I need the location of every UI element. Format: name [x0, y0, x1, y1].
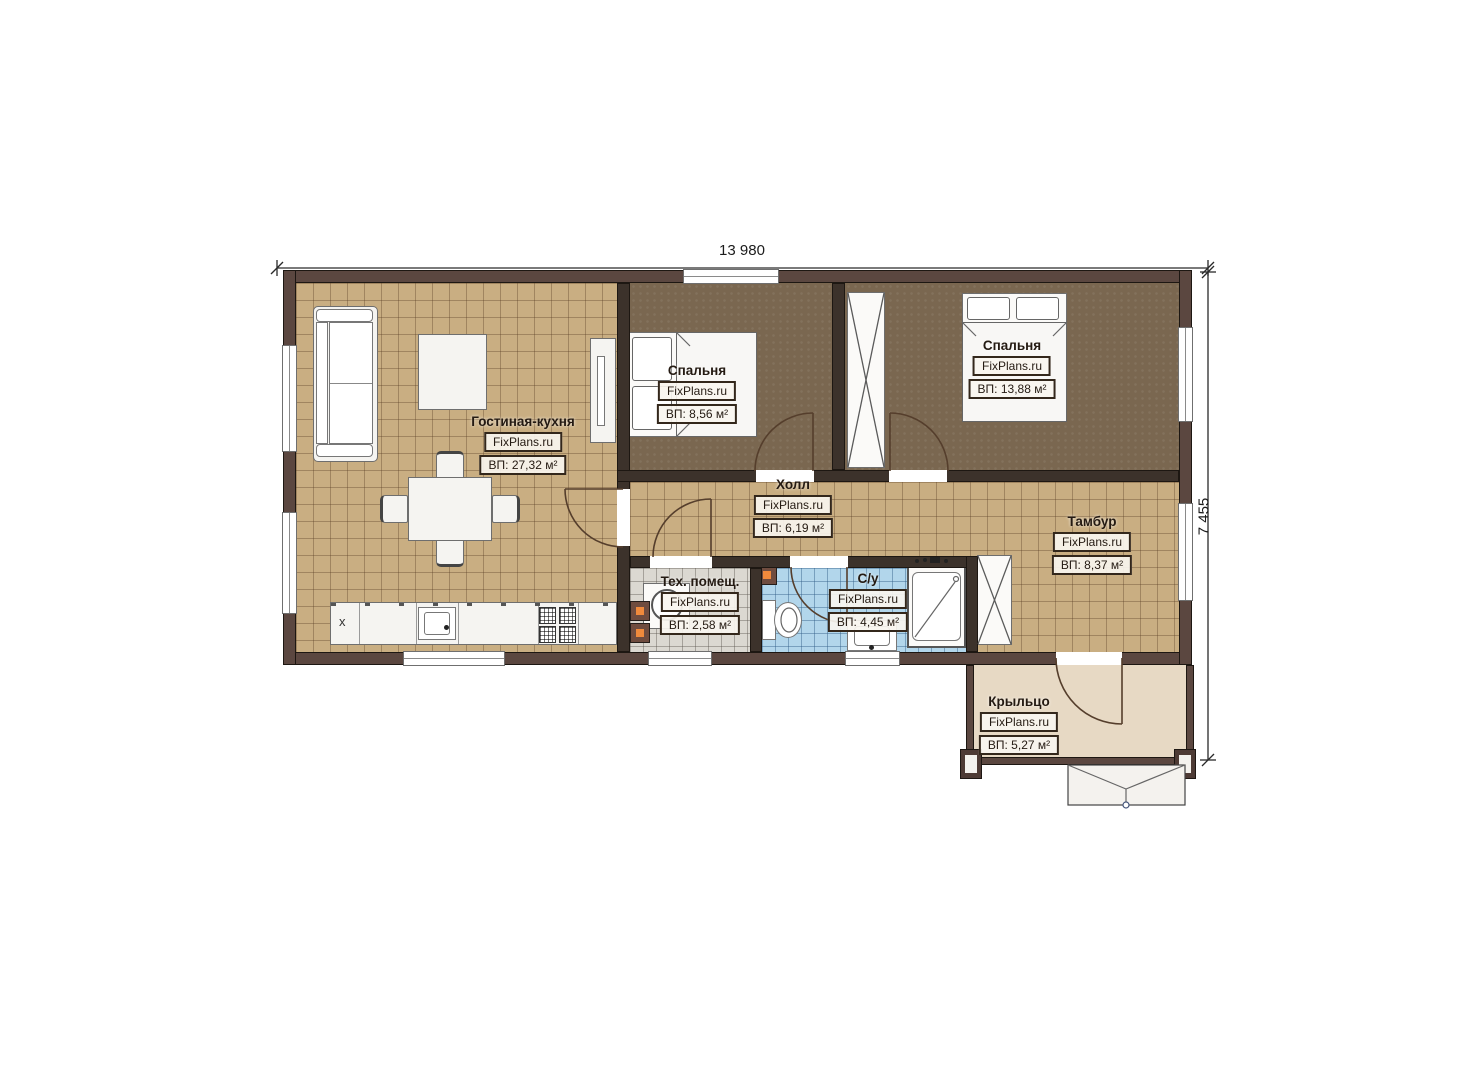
wardrobe-cross-bedroom2 [848, 293, 884, 467]
door-arc-bedroom2 [890, 413, 948, 471]
room-area: ВП: 6,19 м² [753, 518, 833, 538]
wardrobe-cross-vestibule [978, 556, 1011, 644]
room-area: ВП: 13,88 м² [969, 379, 1056, 399]
room-name: Тамбур [1052, 514, 1132, 529]
plan-linework [0, 0, 1473, 1080]
shower-drain-line [915, 557, 959, 637]
room-site: FixPlans.ru [661, 592, 739, 612]
room-area: ВП: 2,58 м² [660, 615, 740, 635]
floor-plan-canvas: x [0, 0, 1473, 1080]
room-area: ВП: 8,37 м² [1052, 555, 1132, 575]
door-arc-tech [653, 499, 711, 557]
room-name: Спальня [657, 363, 737, 378]
room-name: Спальня [969, 338, 1056, 353]
room-label-tech: Тех. помещ. FixPlans.ru ВП: 2,58 м² [660, 574, 740, 635]
room-name: С/у [828, 571, 908, 586]
room-label-bedroom2: Спальня FixPlans.ru ВП: 13,88 м² [969, 338, 1056, 399]
room-label-living: Гостиная-кухня FixPlans.ru ВП: 27,32 м² [471, 414, 574, 475]
toilet-bowl-line [781, 608, 797, 632]
dimension-line-top [271, 260, 1214, 276]
room-label-bedroom1: Спальня FixPlans.ru ВП: 8,56 м² [657, 363, 737, 424]
room-area: ВП: 8,56 м² [657, 404, 737, 424]
room-site: FixPlans.ru [754, 495, 832, 515]
room-site: FixPlans.ru [1053, 532, 1131, 552]
room-name: Холл [753, 477, 833, 492]
room-site: FixPlans.ru [829, 589, 907, 609]
room-area: ВП: 5,27 м² [979, 735, 1059, 755]
room-label-bathroom: С/у FixPlans.ru ВП: 4,45 м² [828, 571, 908, 632]
room-name: Гостиная-кухня [471, 414, 574, 429]
room-site: FixPlans.ru [973, 356, 1051, 376]
door-arc-entrance [1056, 658, 1122, 724]
room-label-hall: Холл FixPlans.ru ВП: 6,19 м² [753, 477, 833, 538]
dimension-width-label: 13 980 [692, 242, 792, 259]
room-site: FixPlans.ru [658, 381, 736, 401]
room-area: ВП: 27,32 м² [480, 455, 567, 475]
room-area: ВП: 4,45 м² [828, 612, 908, 632]
dimension-height-label: 7 455 [1196, 485, 1213, 549]
door-arc-bedroom1 [755, 413, 813, 471]
door-arc-living [565, 489, 623, 547]
room-label-vestibule: Тамбур FixPlans.ru ВП: 8,37 м² [1052, 514, 1132, 575]
room-name: Тех. помещ. [660, 574, 740, 589]
room-label-porch: Крыльцо FixPlans.ru ВП: 5,27 м² [979, 694, 1059, 755]
room-name: Крыльцо [979, 694, 1059, 709]
room-site: FixPlans.ru [484, 432, 562, 452]
porch-steps [1068, 765, 1185, 808]
room-site: FixPlans.ru [980, 712, 1058, 732]
